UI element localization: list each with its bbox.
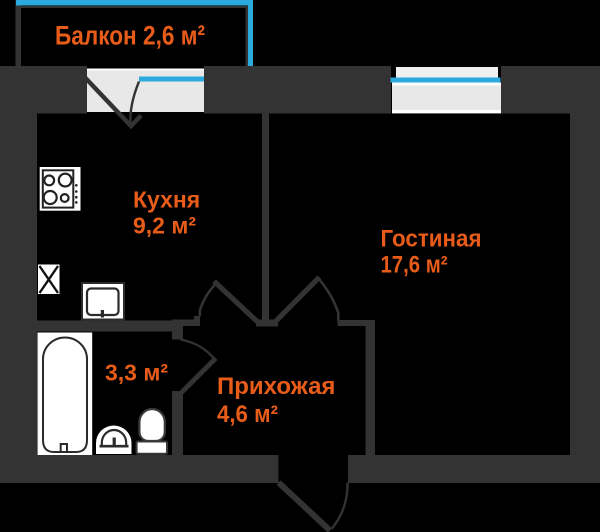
svg-text:Кухня: Кухня	[133, 187, 200, 213]
svg-text:9,2 м²: 9,2 м²	[133, 213, 196, 239]
svg-text:4,6 м²: 4,6 м²	[217, 401, 278, 428]
svg-text:17,6 м²: 17,6 м²	[381, 252, 448, 279]
svg-text:3,3 м²: 3,3 м²	[105, 360, 168, 386]
svg-text:Гостиная: Гостиная	[381, 226, 482, 253]
svg-text:Балкон 2,6 м²: Балкон 2,6 м²	[55, 21, 205, 51]
svg-text:Прихожая: Прихожая	[217, 373, 335, 400]
